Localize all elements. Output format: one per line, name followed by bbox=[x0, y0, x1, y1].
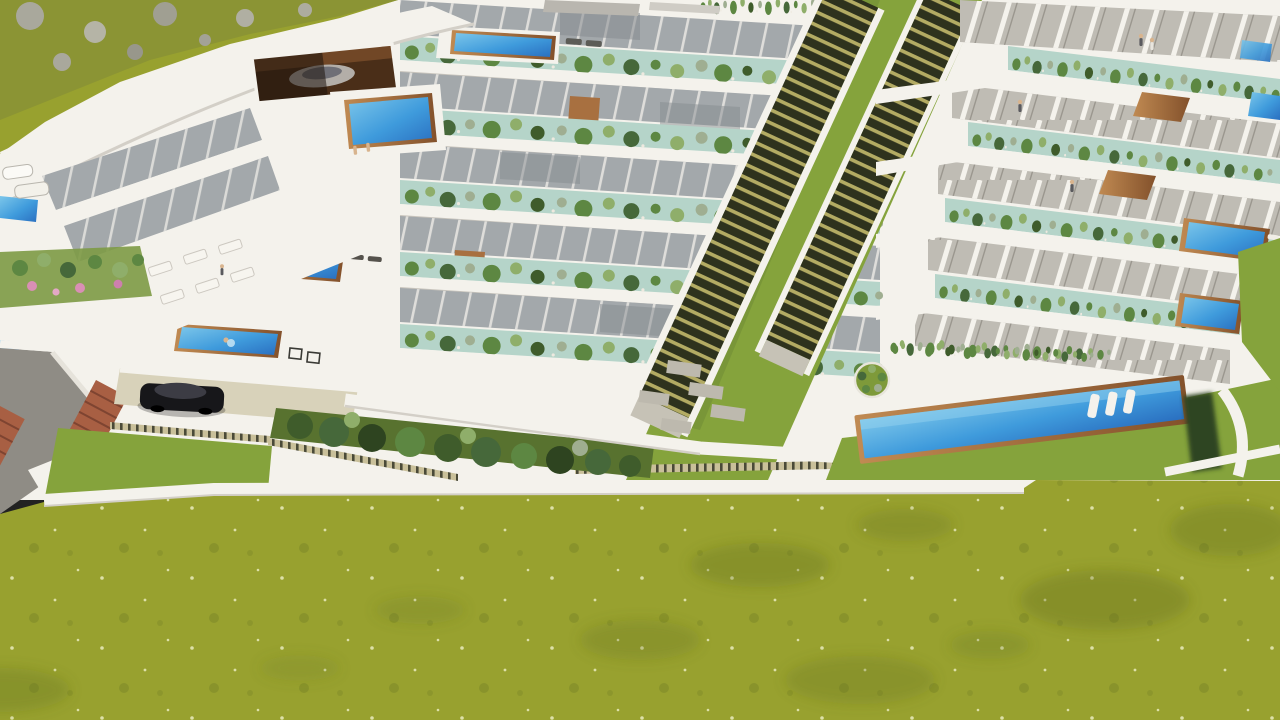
render-canvas bbox=[0, 0, 1280, 720]
villa-pool bbox=[330, 84, 446, 158]
meadow bbox=[0, 480, 1280, 720]
circular-garden-bed bbox=[855, 363, 889, 397]
architectural-render: Aerial 3D rendering of a terraced hillsi… bbox=[0, 0, 1280, 720]
render-viewport: Aerial 3D rendering of a terraced hillsi… bbox=[0, 0, 1280, 720]
